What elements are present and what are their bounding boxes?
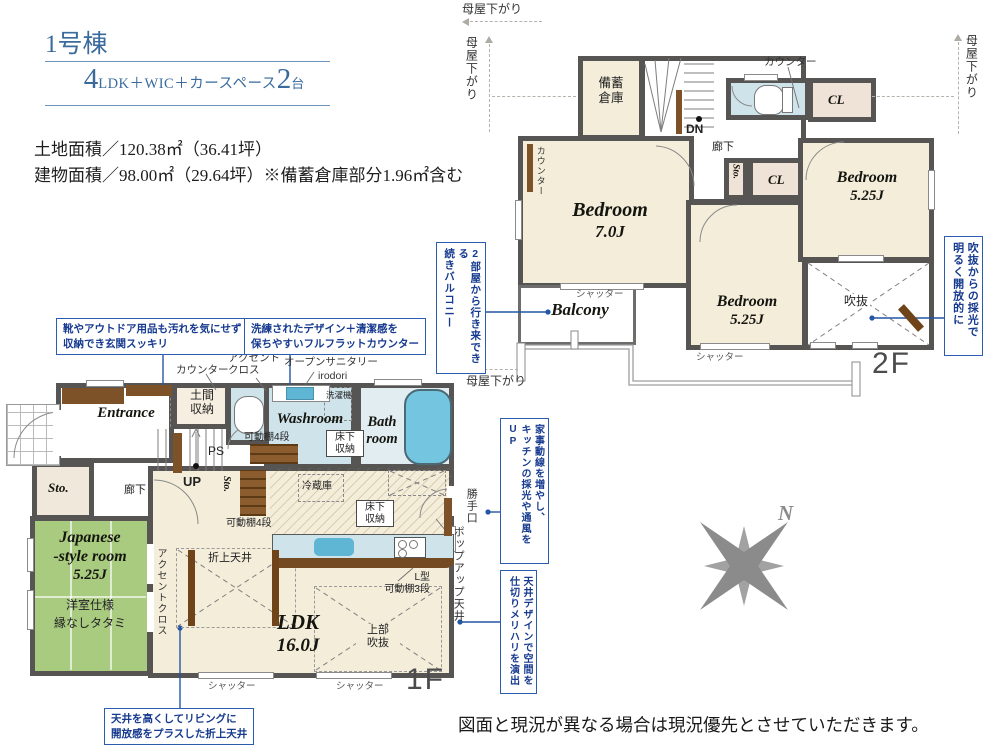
2f-closet-topright-label: CL (828, 92, 845, 108)
1f-porch-tiles (6, 404, 60, 466)
1f-kitchen-counter (272, 534, 454, 560)
plan-spec: 4LDK＋WIC＋カースペース2台 (58, 63, 330, 96)
moyasagari-mid-line-2 (872, 96, 954, 97)
1f-shelf4-wash (250, 444, 298, 464)
1f-accent-cloth-label: アクセント クロス (228, 352, 280, 376)
1f-kitchen-counter-edge (272, 558, 454, 568)
title-rule-bottom (45, 105, 330, 106)
stove-burner-1 (398, 540, 407, 549)
1f-counter-label: カウンター (176, 364, 229, 377)
1f-katteguchi-label: 勝手口 (464, 488, 477, 524)
2f-balcony-label: Balcony (548, 300, 612, 320)
floorplan-canvas: 1号棟 4LDK＋WIC＋カースペース2台 土地面積／120.38㎡（36.41… (0, 0, 1000, 750)
2f-bedroom5-mid-size: 5.25J (698, 311, 796, 329)
1f-jroom-window-left-1 (27, 538, 34, 572)
2f-bedroom5-right-size: 5.25J (812, 187, 922, 205)
2f-bedroom7-counter (527, 144, 533, 192)
2f-floor-label: 2F (872, 346, 911, 382)
1f-open-sanitary-label: オープンサニタリー (284, 356, 378, 369)
2f-bedroom5-mid-name: Bedroom (698, 292, 796, 311)
1f-jroom-window-left-2 (27, 590, 34, 630)
1f-washroom-label: Washroom (268, 410, 352, 428)
1f-popup-ceiling-label: ポップアップ天井 (451, 526, 464, 622)
callout-housework-line1: 家事動線を増やし、 (532, 424, 544, 558)
1f-jroom-note1: 洋室仕様 (34, 598, 146, 612)
2f-toilet-window (744, 74, 778, 81)
1f-jroom-size: 5.25J (34, 566, 146, 584)
2f-bedroom7-counter-label: カウンター (535, 146, 546, 196)
moyasagari-topleft-arrow (462, 18, 469, 26)
1f-corridor-label: 廊下 (124, 484, 146, 497)
moyasagari-right-arrow (954, 34, 962, 41)
1f-ldk-size: 16.0J (256, 635, 340, 658)
page-title: 1号棟 (45, 24, 108, 60)
1f-wash-sink (286, 387, 314, 400)
callout-continuous-balcony-line1: 2部屋から行き来できる (457, 248, 481, 368)
1f-ps-label: PS (208, 444, 224, 458)
1f-stair-rail (173, 433, 182, 473)
1f-coffered-ceiling-label: 折上天井 (206, 552, 254, 565)
plan-rooms-text: LDK＋WIC＋カースペース (98, 76, 277, 92)
1f-upper-void-label: 上部 吹抜 (356, 624, 400, 650)
1f-bathroom-window-top (374, 379, 422, 386)
callout-continuous-balcony-line2: 続きバルコニー (443, 248, 455, 368)
2f-bedroom5r-window-bottom (838, 255, 884, 262)
1f-doma-storage-label: 土間 収納 (182, 388, 222, 417)
plan-cars-count: 2 (277, 63, 292, 95)
2f-storage-label: 備蓄 倉庫 (588, 76, 634, 106)
1f-up-label: UP (183, 474, 201, 490)
moyasagari-topleft-line (470, 21, 542, 22)
1f-storage-bottomleft-label: Sto. (48, 480, 69, 496)
2f-dn-label: DN (686, 122, 703, 136)
stove-burner-2 (409, 540, 418, 549)
1f-bathroom-label: Bath room (358, 414, 406, 449)
callout-void-light-line2: 明るく開放的に (951, 242, 964, 350)
moyasagari-left-line (489, 44, 490, 132)
1f-shelf4-hall (240, 470, 266, 516)
callout-ceiling-design-line1: 天井デザインで空間を (521, 576, 533, 688)
building-area-text: 建物面積／98.00㎡（29.64坪）※備蓄倉庫部分1.96㎡含む (34, 161, 463, 186)
1f-shutter-label-1: シャッター (208, 681, 256, 692)
1f-bathtub (404, 389, 452, 465)
1f-entrance-window-top (86, 380, 124, 387)
1f-shoe-cabinet-1 (62, 388, 124, 404)
moyasagari-left: 母屋下がり (464, 36, 478, 101)
1f-entrance-label: Entrance (86, 404, 166, 422)
2f-toilet-fixture (754, 85, 784, 115)
1f-shelf4-hall-label: 可動棚4段 (226, 518, 272, 530)
callout-flat-counter: 洗練されたデザイン＋清潔感を 保ちやすいフルフラットカウンター (244, 318, 426, 355)
2f-shutter-label-1: シャッター (576, 289, 624, 300)
2f-bedroom5r-window-right (928, 170, 935, 210)
callout-housework-line2: キッチンの採光や通風をUP (507, 424, 530, 558)
moyasagari-left-arrow (485, 36, 493, 43)
1f-storage-center-label: Sto. (220, 476, 232, 492)
moyasagari-right-line (958, 42, 959, 134)
callout-coffered-ceiling: 天井を高くしてリビングに 開放感をプラスした折上天井 (104, 708, 254, 745)
plan-rooms-count: 4 (84, 63, 99, 95)
plan-cars-unit: 台 (291, 76, 304, 91)
1f-kitchen-sink (314, 538, 354, 556)
moyasagari-bottom: 母屋下がり (466, 374, 526, 388)
1f-fridge-label: 冷蔵庫 (302, 481, 332, 493)
1f-l-shelf-label: L型 可動棚3段 (368, 572, 430, 596)
2f-toilet-tank (782, 87, 793, 113)
title-rule-top (45, 61, 330, 62)
2f-bedroom7-label: Bedroom 7.0J (545, 198, 675, 242)
1f-underfloor-kitchen: 床下 収納 (356, 500, 394, 527)
1f-japanese-room-label: Japanese -style room 5.25J (34, 528, 146, 584)
callout-entrance-storage: 靴やアウトドア用品も汚れを気にせず 収納でき玄関スッキリ (56, 318, 249, 355)
2f-stair-rail (676, 90, 682, 134)
1f-ldk-name: LDK (256, 610, 340, 635)
1f-jroom-line2: -style room (34, 547, 146, 566)
disclaimer-text: 図面と現況が異なる場合は現況優先とさせていただきます。 (458, 712, 929, 737)
2f-bedroom7-window-left (515, 200, 522, 240)
1f-ceiling-beam-1 (188, 550, 195, 626)
compass-star-icon: N (686, 500, 806, 620)
1f-shelf4-wash-label: 可動棚4段 (244, 432, 290, 444)
1f-accent-cloth-vlabel: アクセントクロス (154, 548, 166, 636)
moyasagari-mid-line-1 (492, 96, 576, 97)
1f-ldk-label: LDK 16.0J (256, 610, 340, 658)
1f-ldk-window-bottom-2 (316, 672, 392, 679)
2f-closet-mid-label: CL (768, 172, 785, 188)
2f-sto-label: Sto. (729, 164, 740, 179)
2f-bedroom5m-window-bottom (700, 343, 770, 350)
2f-shutter-label-2: シャッター (696, 352, 744, 363)
1f-entrance-door-gap (53, 410, 61, 456)
1f-washer-label: 洗濯機 (326, 390, 352, 400)
1f-floor-label: 1F (406, 662, 445, 698)
land-area-text: 土地面積／120.38㎡（36.41坪） (34, 135, 272, 160)
1f-kitchen-dashed-area (388, 470, 446, 496)
2f-corridor-label: 廊下 (712, 141, 734, 154)
moyasagari-right: 母屋下がり (964, 34, 978, 99)
callout-ceiling-design-line2: 仕切りメリハリを演出 (507, 576, 519, 688)
1f-shoe-cabinet-2 (126, 385, 172, 396)
1f-irodori-label: irodori (318, 370, 347, 383)
1f-jroom-door-gap-1 (147, 544, 154, 584)
2f-bedroom7-size: 7.0J (545, 222, 675, 242)
compass-north-label: N (777, 501, 794, 525)
callout-ceiling-design: 天井デザインで空間を 仕切りメリハリを演出 (500, 570, 537, 694)
2f-bedroom5-right-name: Bedroom (812, 168, 922, 187)
2f-void-window-bottom-1 (810, 342, 836, 349)
1f-jroom-door-gap-2 (147, 592, 154, 632)
1f-jroom-line1: Japanese (34, 528, 146, 547)
callout-continuous-balcony: 2部屋から行き来できる 続きバルコニー (436, 242, 486, 374)
callout-void-light: 吹抜からの採光で 明るく開放的に (944, 236, 983, 356)
2f-void-label: 吹抜 (842, 294, 870, 308)
1f-ldk-window-bottom-1 (198, 672, 274, 679)
1f-stove (394, 537, 426, 558)
1f-jroom-note2: 縁なしタタミ (34, 616, 146, 630)
2f-counter-label: カウンター (764, 56, 817, 69)
1f-shutter-label-2: シャッター (336, 681, 384, 692)
1f-toilet-fixture (234, 396, 264, 434)
2f-bedroom7-name: Bedroom (545, 198, 675, 222)
compass-rose: N (686, 500, 806, 620)
2f-bedroom5-right-label: Bedroom 5.25J (812, 168, 922, 205)
stove-burner-3 (398, 549, 407, 558)
callout-housework-line: 家事動線を増やし、 キッチンの採光や通風をUP (500, 418, 549, 564)
callout-void-light-line1: 吹抜からの採光で (966, 242, 979, 350)
2f-bedroom5-mid-label: Bedroom 5.25J (698, 292, 796, 329)
moyasagari-topleft: 母屋下がり (462, 2, 522, 16)
